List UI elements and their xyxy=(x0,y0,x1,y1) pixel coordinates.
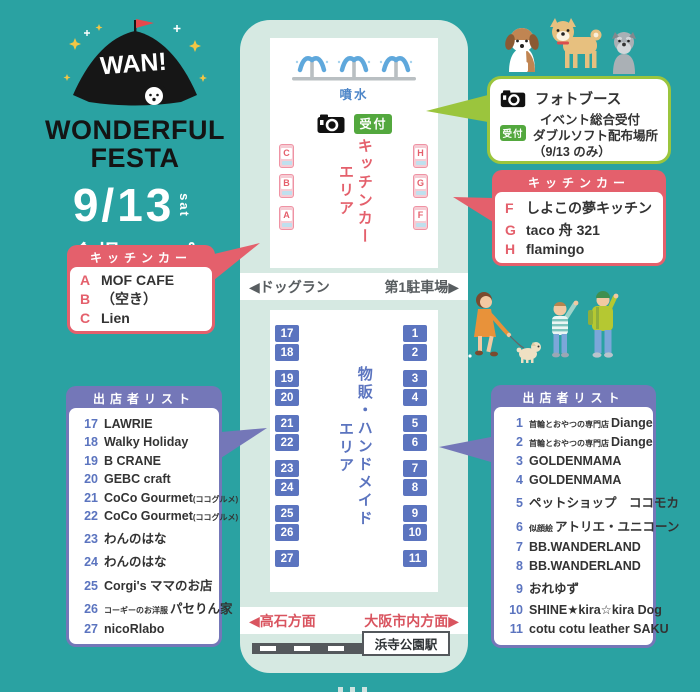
vendor-list-header: 出店者リスト xyxy=(491,389,656,406)
truck-letter: F xyxy=(415,210,426,221)
vendor-row: 3GOLDENMAMA xyxy=(504,454,643,468)
vendor-row: 20GEBC craft xyxy=(79,472,209,486)
fountain-icon xyxy=(292,48,416,82)
vendor-row: 27nicoRlabo xyxy=(79,622,209,636)
truck-windshield xyxy=(282,191,292,195)
station-box: 浜寺公園駅 xyxy=(362,631,450,656)
vendor-list-left: 出店者リスト 17LAWRIE 18Walky Holiday 19B CRAN… xyxy=(66,386,222,647)
vendor-row: 17LAWRIE xyxy=(79,417,209,431)
list-item: A MOF CAFE xyxy=(80,272,202,288)
stall-9: 9 xyxy=(403,505,427,522)
truck-letter: C xyxy=(281,148,292,159)
event-date-number: 9/13 xyxy=(73,178,175,232)
stall-8: 8 xyxy=(403,479,427,496)
stall-26: 26 xyxy=(275,524,299,541)
three-dogs-illustration xyxy=(497,8,639,76)
stall-22: 22 xyxy=(275,434,299,451)
food-truck-marker-F: F xyxy=(413,206,428,230)
festa-tent-logo-icon: WAN! xyxy=(59,16,211,116)
vendor-row: 21CoCo Gourmet(ココグルメ) xyxy=(79,491,209,505)
stall-1: 1 xyxy=(403,325,427,342)
kitchen-area-label: キッチンカー エリア xyxy=(335,138,373,246)
handmade-area-label: 物販・ハンドメイド エリア xyxy=(335,366,373,528)
truck-letter: G xyxy=(415,178,426,189)
vendor-row: 23わんのはな xyxy=(79,528,209,547)
reception-info-lines: イベント総合受付 ダブルソフト配布場所 （9/13 のみ） xyxy=(533,112,658,160)
photobooth-callout-pointer xyxy=(426,94,488,124)
stall-27: 27 xyxy=(275,550,299,567)
vendor-row: 18Walky Holiday xyxy=(79,435,209,449)
stall-column-left: 17 18 19 20 21 22 23 24 25 26 27 xyxy=(275,325,299,567)
list-item: F しよこの夢キッチン xyxy=(505,198,653,218)
truck-letter: H xyxy=(415,148,426,159)
stall-25: 25 xyxy=(275,505,299,522)
kitchen-car-area-map: 噴水 受付 C B A H xyxy=(270,38,438,268)
logo-title-line1: WONDERFUL xyxy=(45,116,225,144)
camera-icon xyxy=(500,89,526,108)
vendor-row: 2首輪とおやつの専門店Diange xyxy=(504,435,643,449)
vendor-list-header: 出店者リスト xyxy=(66,390,222,407)
stall-17: 17 xyxy=(275,325,299,342)
vendor-row: 7BB.WANDERLAND xyxy=(504,540,643,554)
kitchen-car-list-right: キッチンカー F しよこの夢キッチン G taco 舟 321 H flamin… xyxy=(492,170,666,266)
vendor-row: 24わんのはな xyxy=(79,551,209,570)
truck-windshield xyxy=(416,191,426,195)
vendor-row: 4GOLDENMAMA xyxy=(504,473,643,487)
truck-windshield xyxy=(282,223,292,227)
vendor-row: 26コーギーのお洋服パセりん家 xyxy=(79,598,209,617)
event-date-day: sat xyxy=(177,193,192,218)
vendor-row: 9おれゆず xyxy=(504,578,643,597)
stall-19: 19 xyxy=(275,370,299,387)
kitchen-car-list-header: キッチンカー xyxy=(67,249,215,266)
photobooth-label: フォトブース xyxy=(535,88,621,109)
truck-letter: A xyxy=(281,210,292,221)
dogrun-direction-label: ◀ドッグラン xyxy=(249,277,330,297)
people-walking-dog-illustration xyxy=(462,280,642,380)
list-item: B （空き） xyxy=(80,289,202,309)
parking-direction-label: 第1駐車場▶ xyxy=(384,277,459,297)
stall-4: 4 xyxy=(403,389,427,406)
reception-info-row: 受付 イベント総合受付 ダブルソフト配布場所 （9/13 のみ） xyxy=(500,112,658,160)
truck-windshield xyxy=(416,223,426,227)
kitchen-car-list-header: キッチンカー xyxy=(492,174,666,191)
vendor-row: 10SHINE★kira☆kira Dog xyxy=(504,602,643,617)
food-truck-marker-C: C xyxy=(279,144,294,168)
fountain-label: 噴水 xyxy=(339,84,368,103)
food-truck-marker-H: H xyxy=(413,144,428,168)
vendors-left-callout-pointer xyxy=(221,420,267,460)
photobooth-callout: フォトブース 受付 イベント総合受付 ダブルソフト配布場所 （9/13 のみ） xyxy=(487,76,671,164)
food-truck-marker-B: B xyxy=(279,174,294,198)
vendor-row: 5ペットショップ ココモカ xyxy=(504,492,643,511)
kitchen-left-callout-pointer xyxy=(214,240,260,282)
stall-20: 20 xyxy=(275,389,299,406)
vendor-row: 19B CRANE xyxy=(79,454,209,468)
kitchen-car-list-left: キッチンカー A MOF CAFE B （空き） C Lien xyxy=(67,245,215,334)
stall-7: 7 xyxy=(403,460,427,477)
truck-windshield xyxy=(416,161,426,165)
stall-24: 24 xyxy=(275,479,299,496)
photobooth-row: フォトブース xyxy=(500,88,658,109)
truck-windshield xyxy=(282,161,292,165)
reception-info-line1: イベント総合受付 xyxy=(533,112,658,128)
vendor-list-body: 17LAWRIE 18Walky Holiday 19B CRANE 20GEB… xyxy=(69,408,219,644)
truck-letter: B xyxy=(281,178,292,189)
event-date: 9/13 sat xyxy=(73,178,197,232)
camera-icon xyxy=(317,113,345,134)
vendor-row: 1首輪とおやつの専門店Diange xyxy=(504,416,643,430)
stall-2: 2 xyxy=(403,344,427,361)
takaishi-direction-label: ◀高石方面 xyxy=(249,611,316,631)
stall-23: 23 xyxy=(275,460,299,477)
logo-title-line2: FESTA xyxy=(91,144,180,172)
food-truck-marker-A: A xyxy=(279,206,294,230)
reception-info-line3: （9/13 のみ） xyxy=(533,144,658,160)
stall-11: 11 xyxy=(403,550,427,567)
vendor-row: 25Corgi's ママのお店 xyxy=(79,575,209,594)
road-direction-banner: ◀高石方面 大阪市内方面▶ xyxy=(240,607,468,634)
vendor-row: 8BB.WANDERLAND xyxy=(504,559,643,573)
stall-3: 3 xyxy=(403,370,427,387)
list-item: C Lien xyxy=(80,310,202,326)
vendor-row: 22CoCo Gourmet(ココグルメ) xyxy=(79,509,209,523)
stall-6: 6 xyxy=(403,434,427,451)
stall-10: 10 xyxy=(403,524,427,541)
handmade-area-map: 17 18 19 20 21 22 23 24 25 26 27 物販・ハンドメ… xyxy=(270,310,438,592)
osaka-direction-label: 大阪市内方面▶ xyxy=(364,611,459,631)
vendor-list-body: 1首輪とおやつの専門店Diange 2首輪とおやつの専門店Diange 3GOL… xyxy=(494,407,653,645)
kitchen-right-callout-pointer xyxy=(453,192,493,224)
stall-column-right: 1 2 3 4 5 6 7 8 9 10 11 xyxy=(403,325,427,567)
vendors-right-callout-pointer xyxy=(439,436,491,464)
stall-18: 18 xyxy=(275,344,299,361)
stall-5: 5 xyxy=(403,415,427,432)
vendor-list-right: 出店者リスト 1首輪とおやつの専門店Diange 2首輪とおやつの専門店Dian… xyxy=(491,385,656,648)
vendor-row: 11cotu cotu leather SAKU xyxy=(504,622,643,636)
cropped-bottom-text-hint xyxy=(338,687,367,692)
food-truck-marker-G: G xyxy=(413,174,428,198)
reception-badge: 受付 xyxy=(354,114,392,134)
reception-row: 受付 xyxy=(317,113,392,134)
dogrun-parking-banner: ◀ドッグラン 第1駐車場▶ xyxy=(240,273,468,300)
list-item: G taco 舟 321 xyxy=(505,220,653,240)
logo-block: WAN! WONDERFUL FESTA 9/13 sat 会場マップ xyxy=(38,16,232,268)
kitchen-car-list-body: F しよこの夢キッチン G taco 舟 321 H flamingo xyxy=(495,192,663,263)
list-item: H flamingo xyxy=(505,241,653,257)
kitchen-car-list-body: A MOF CAFE B （空き） C Lien xyxy=(70,267,212,331)
vendor-row: 6似顔絵アトリエ・ユニコーン xyxy=(504,516,643,535)
reception-info-line2: ダブルソフト配布場所 xyxy=(533,128,658,144)
reception-badge: 受付 xyxy=(500,125,526,141)
logo-wan-text: WAN! xyxy=(99,48,167,81)
stall-21: 21 xyxy=(275,415,299,432)
